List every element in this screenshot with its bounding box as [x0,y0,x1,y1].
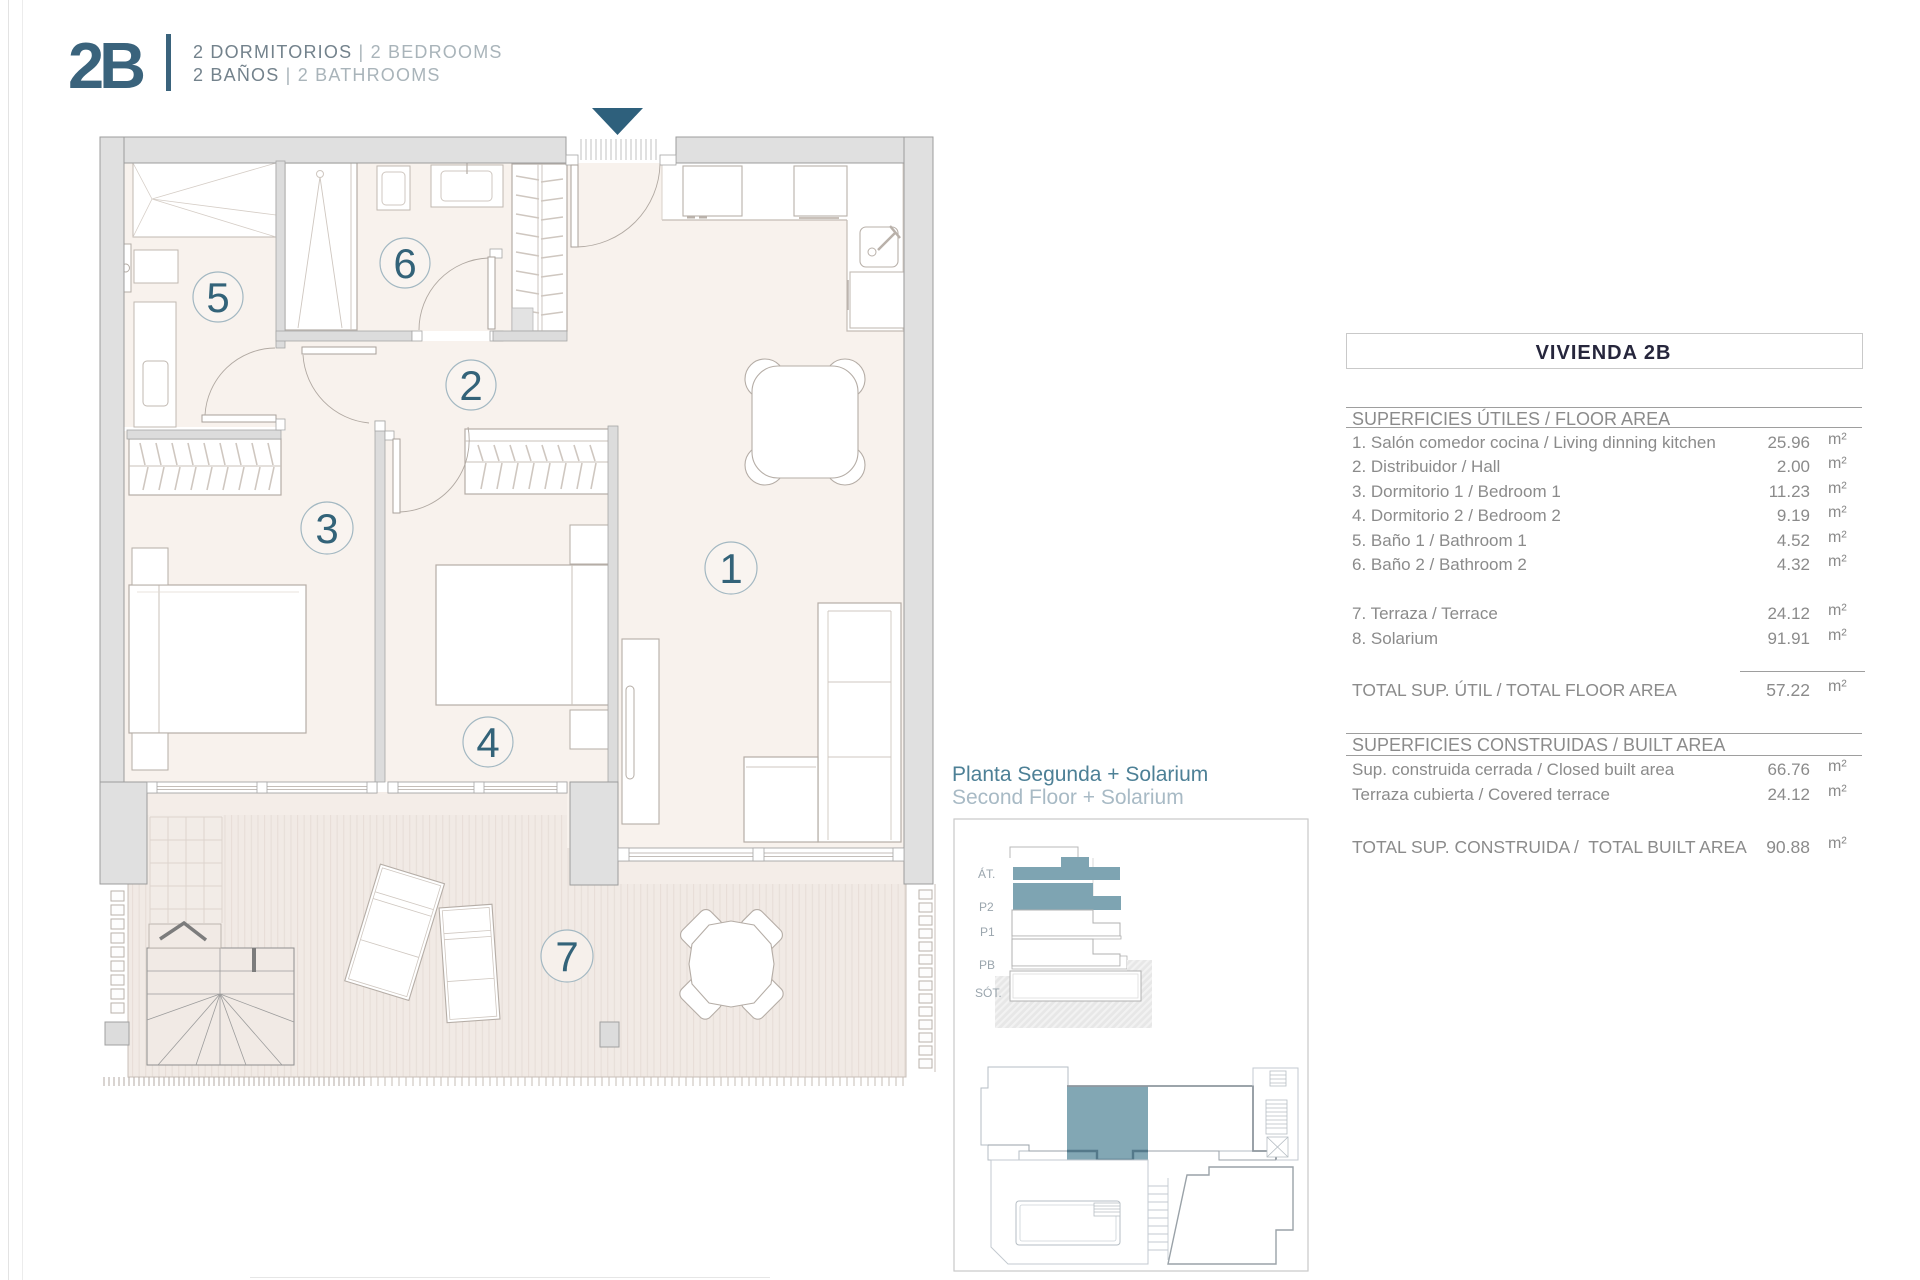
svg-text:5: 5 [206,274,229,321]
svg-text:6: 6 [393,240,416,287]
svg-text:7: 7 [555,933,578,980]
svg-text:3: 3 [315,505,338,552]
svg-text:P1: P1 [980,925,995,939]
svg-text:ÁT.: ÁT. [978,866,995,881]
svg-text:P2: P2 [979,900,994,914]
svg-text:2: 2 [459,362,482,409]
svg-text:1: 1 [719,545,742,592]
svg-text:4: 4 [476,719,499,766]
svg-text:PB: PB [979,958,995,972]
svg-text:SÓT.: SÓT. [975,985,1002,1000]
